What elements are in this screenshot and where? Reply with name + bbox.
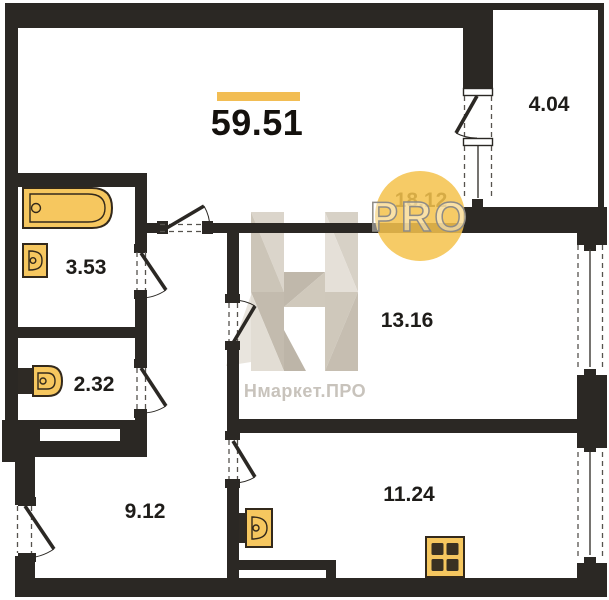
floorplan-page: Нмаркет.ПРО [0, 0, 609, 600]
kitchen-sink-icon [239, 509, 272, 547]
bathtub-icon [23, 188, 112, 228]
stove-icon [426, 537, 464, 577]
kitchen-area-label: 11.24 [383, 483, 435, 506]
balcony-area-label: 4.04 [529, 93, 570, 116]
kitchen-sink-bracket [239, 513, 246, 543]
pro-badge-text: PRO [370, 193, 470, 240]
total-area-block: 59.51 [211, 92, 304, 143]
duct-opening [40, 429, 120, 441]
stove-burner [432, 559, 444, 571]
hallway-area-label: 9.12 [125, 500, 166, 523]
watermark-brand-text: Нмаркет.ПРО [244, 381, 366, 401]
stove-burner [447, 543, 459, 555]
bathroom-door-leaf [141, 253, 166, 290]
stove-burner [432, 543, 444, 555]
bathroom-area-label: 3.53 [66, 256, 107, 279]
toilet-area-label: 2.32 [74, 373, 115, 396]
living-room-door-leaf [165, 206, 204, 229]
sink-icon [23, 244, 47, 277]
stove-burner [447, 559, 459, 571]
pro-badge: PRO [370, 171, 470, 261]
duct-opening [239, 570, 326, 578]
sink-counter [23, 244, 47, 277]
balcony-door-arc [456, 133, 477, 138]
logo-facet [284, 330, 306, 371]
balcony-window-sill [464, 139, 493, 146]
floorplan-canvas: Нмаркет.ПРО [0, 0, 609, 600]
toilet-tank [18, 368, 33, 394]
toilet-door-leaf [141, 368, 166, 406]
entrance-door-leaf [25, 506, 54, 549]
stove-body [426, 537, 464, 577]
watermark-logo: Нмаркет.ПРО [226, 212, 366, 401]
toilet-icon [18, 366, 62, 396]
door-opening-dashes [18, 96, 603, 557]
balcony-door-sill [464, 89, 493, 96]
room-area-label: 13.16 [381, 309, 434, 332]
balcony-door-leaf [456, 96, 477, 133]
total-area-label: 59.51 [211, 102, 304, 143]
total-area-accent-bar [217, 92, 300, 101]
kitchen-door-leaf [233, 441, 255, 477]
